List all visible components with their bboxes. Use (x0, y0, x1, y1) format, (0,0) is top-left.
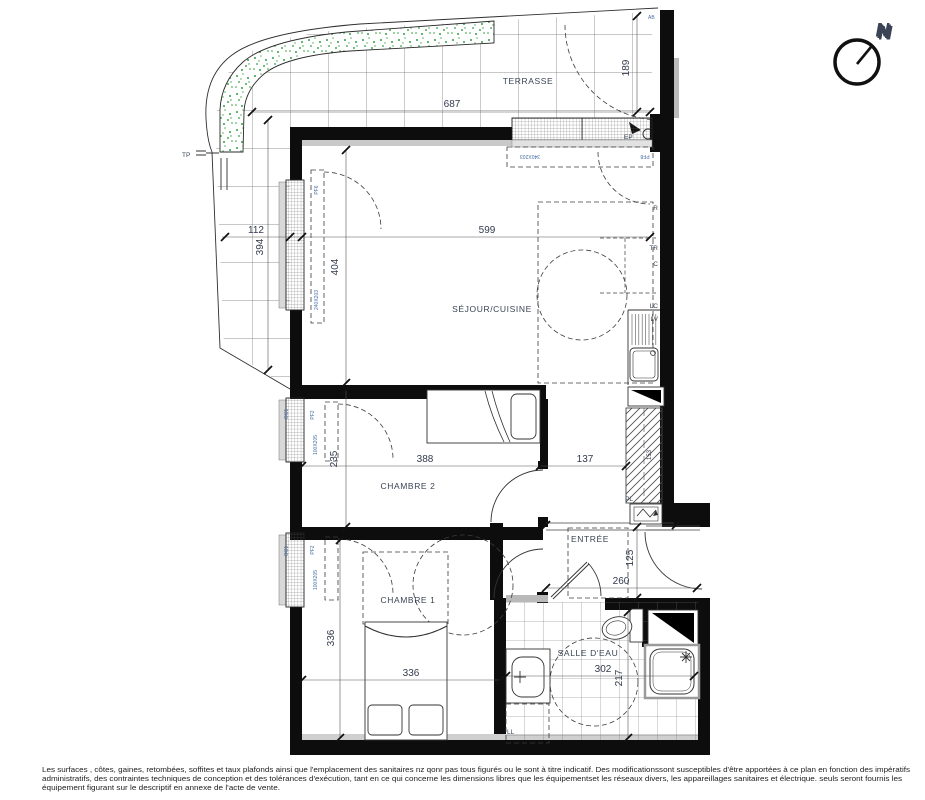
shaft-dim: 153 (647, 449, 653, 460)
dim-entree-h: 125 (625, 549, 636, 566)
chambre2-shutter-ref: OC1 (284, 409, 290, 420)
wall-left-1 (290, 127, 302, 180)
chambre2-window-ref: PF2 (310, 410, 316, 419)
bath-door-leaf (551, 562, 589, 599)
tp-label: TP (182, 152, 190, 159)
dim-strip-w: 112 (248, 225, 264, 236)
pl-label: PL (625, 496, 633, 503)
window-chambre2 (286, 398, 304, 462)
threshold-bath (506, 595, 548, 602)
dim-salle-eau-h: 217 (614, 669, 625, 686)
wall-left-3 (290, 462, 302, 533)
sill-sejour (279, 182, 286, 308)
dim-terrace-d: 189 (621, 59, 632, 76)
turning-circle-sejour (537, 250, 627, 340)
dim-hall-w: 137 (577, 454, 594, 465)
liner-top (302, 140, 512, 146)
compass-icon: N N N (835, 21, 894, 85)
chambre1-window-clearance (325, 537, 338, 600)
sejour-label: SÉJOUR/CUISINE (452, 304, 532, 314)
tp-connector (196, 151, 219, 155)
bed-single (427, 390, 540, 443)
terrace-group: TP TERRASSE AB EP (182, 6, 662, 396)
window-chambre1 (286, 533, 304, 607)
dim-chambre1-w: 336 (403, 668, 420, 679)
wall-chambre2-hall (540, 399, 548, 467)
wall-salle-eau-left (494, 598, 506, 742)
bay-sill (512, 140, 652, 147)
duct-box-bath (648, 610, 698, 645)
wall-right-upper (660, 10, 674, 118)
floor-plan-svg: TP TERRASSE AB EP (0, 0, 925, 800)
sejour-window-size: 240X203 (314, 290, 320, 310)
wall-bottom (290, 740, 710, 755)
dim-terrace-w: 687 (444, 99, 461, 110)
sejour-group: SÉJOUR/CUISINE R TR C LC LV (311, 152, 664, 406)
chambre1-window-size: 100X205 (313, 570, 319, 590)
dim-entree-w: 260 (613, 576, 630, 587)
footer-line-3: équipement figurant sur le descriptif en… (42, 783, 280, 792)
chambre1-window-swing (338, 539, 393, 594)
chambre2-group: CHAMBRE 2 (325, 390, 543, 522)
chambre1-label: CHAMBRE 1 (381, 595, 436, 605)
liner-right (674, 58, 679, 118)
sejour-window-swing (324, 172, 381, 229)
kitchen-label-tr: TR (649, 245, 658, 252)
dim-sejour-w: 599 (479, 225, 496, 236)
wall-sejour-top (290, 127, 512, 140)
wall-chambre1-right (490, 523, 503, 600)
dim-chambre2-h: 235 (329, 450, 340, 467)
wall-entry-jog (662, 503, 710, 527)
bath-door-arc (588, 563, 601, 596)
chambre2-window-size: 100X205 (313, 435, 319, 455)
bay-size-label: 340X203 (520, 153, 540, 159)
ll-label: LL (507, 729, 515, 736)
shaft-group: 153 PL (625, 408, 662, 524)
wall-left-2 (290, 310, 302, 398)
chambre2-door-arc (491, 470, 543, 522)
sejour-window-ref: PF6 (314, 185, 320, 194)
terrace-label: TERRASSE (503, 76, 554, 86)
dim-chambre2-w: 388 (417, 454, 434, 465)
footer-disclaimer: Les surfaces , côtes, gaines, retombées,… (42, 765, 910, 792)
chambre1-window-ref: PF2 (310, 545, 316, 554)
entree-label: ENTRÉE (571, 534, 609, 544)
duct-box-kitchen (628, 387, 664, 406)
window-sejour (286, 180, 304, 310)
kitchen-label-c: C (653, 261, 658, 268)
dim-sejour-h: 404 (330, 258, 341, 275)
footer-line-2: administratifs, des contraintes techniqu… (42, 774, 902, 783)
floor-plan-page: TP TERRASSE AB EP (0, 0, 925, 800)
kitchen-label-lc: LC (650, 303, 659, 310)
kitchen-label-r: R (653, 205, 658, 212)
wall-bay-corner (650, 114, 674, 152)
corner-ref-label: AB (648, 15, 655, 21)
kitchen-label-lv: LV (651, 316, 659, 323)
chambre1-shutter-ref: OC1 (284, 546, 290, 557)
chambre2-label: CHAMBRE 2 (381, 481, 436, 491)
kitchen-slot-lines (600, 238, 656, 293)
bay-ref-label: PF8 (640, 153, 649, 159)
wall-left-4 (290, 607, 302, 742)
dim-chambre1-h: 336 (326, 629, 337, 646)
shower (645, 645, 699, 698)
pl-box (630, 504, 662, 524)
bed-double (365, 622, 447, 740)
chambre1-clearance-rect (363, 552, 448, 624)
dim-strip-h: 394 (255, 238, 266, 255)
dim-salle-eau-w: 302 (595, 664, 612, 675)
sill-chambre1 (279, 535, 286, 605)
salle-eau-label: SALLE D'EAU (558, 648, 619, 658)
entry-door-arc (645, 532, 702, 589)
footer-line-1: Les surfaces , côtes, gaines, retombées,… (42, 765, 910, 774)
wall-chambre1-top (290, 527, 543, 540)
north-label: N (877, 22, 892, 43)
